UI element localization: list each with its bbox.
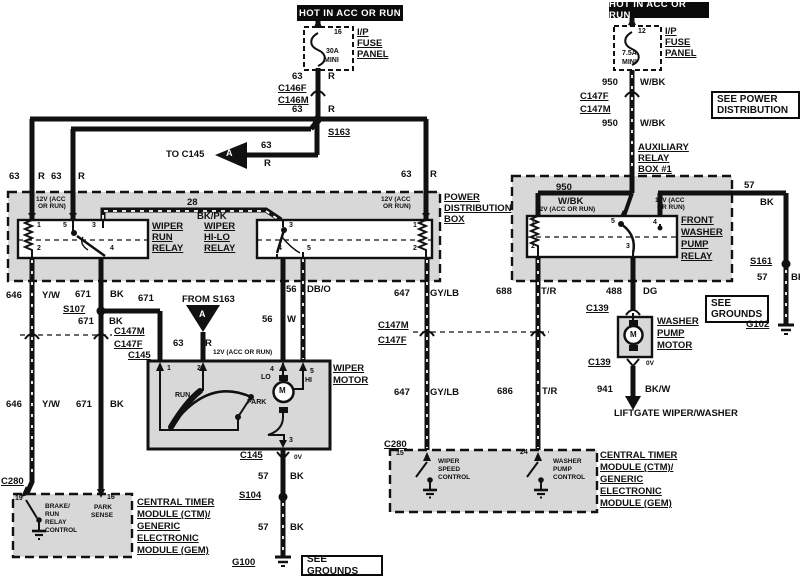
label-wm-pin4: 4 [270, 366, 274, 373]
label-wire-63-7c: R [205, 339, 212, 349]
label-conn-c147m-left: C147M [114, 327, 145, 337]
label-wire-63-4: 63 [401, 170, 412, 180]
label-liftgate-note: LIFTGATE WIPER/WASHER [614, 409, 738, 419]
label-wire-63-5c: R [38, 172, 45, 182]
label-front-washer-relay-1: FRONT [681, 216, 714, 226]
conn-c139-bottom-mark [627, 359, 639, 366]
label-wm-lo: LO [261, 374, 271, 381]
label-wiper-run-relay-1: WIPER [152, 222, 183, 232]
label-fuse-right-rating: 7.5A [622, 50, 637, 57]
label-lm-pin19: 19 [15, 495, 23, 502]
label-wiper-run-relay-2: RUN [152, 233, 173, 243]
label-conn-c280-left: C280 [1, 477, 24, 487]
label-splice-s107: S107 [63, 305, 85, 315]
label-pdb-label-1: POWER [444, 193, 480, 203]
label-wire-671-2: 671 [138, 294, 154, 304]
label-front-washer-relay-3: PUMP [681, 240, 708, 250]
label-wire-63-6: 63 [51, 172, 62, 182]
label-rm-wsc-3: CONTROL [438, 475, 470, 482]
label-pdb-12v-1b: OR RUN) [38, 204, 66, 211]
splice-s161-dot [782, 260, 791, 269]
label-aux-relay-pin2: 2 [531, 243, 535, 250]
label-conn-c139-top: C139 [586, 304, 609, 314]
label-rm-wpc-2: PUMP [553, 467, 572, 474]
label-fuse-left-rating: 30A [326, 48, 339, 55]
label-wiper-hilo-relay-2: HI-LO [204, 233, 230, 243]
label-wire-647-2: 647 [394, 388, 410, 398]
label-wire-950-2c: W/BK [640, 119, 665, 129]
label-wire-688c: T/R [541, 287, 556, 297]
wiper-motor [148, 361, 330, 449]
label-wire-56-1: 56 [286, 285, 297, 295]
see-power-line1: SEE POWER [717, 94, 794, 106]
label-wiper-hilo-relay-1: WIPER [204, 222, 235, 232]
label-wire-63-7: 63 [173, 339, 184, 349]
label-aux-relay-pin5: 5 [611, 218, 615, 225]
label-wire-688: 688 [496, 287, 512, 297]
label-ip-fuse-panel-left-2: FUSE [357, 39, 382, 49]
label-aux-relay-pin3: 3 [626, 243, 630, 250]
label-wire-28: 28 [187, 198, 198, 208]
label-ground-g100: G100 [232, 558, 255, 568]
label-conn-c146f: C146F [278, 84, 307, 94]
label-wm-pin3: 3 [289, 437, 293, 444]
label-ip-fuse-panel-right-3: PANEL [665, 49, 697, 59]
label-ctm-left-4: ELECTRONIC [137, 534, 199, 544]
label-wire-646-1: 646 [6, 291, 22, 301]
label-wiper-run-relay-3: RELAY [152, 244, 183, 254]
label-splice-s163: S163 [328, 128, 350, 138]
label-c139-0v: 0V [646, 361, 654, 368]
label-lm-brake-4: CONTROL [45, 528, 77, 535]
label-washer-pump-motor-3: MOTOR [657, 341, 692, 351]
label-hilo-pin3: 3 [289, 222, 293, 229]
label-lm-park-2: SENSE [91, 513, 113, 520]
label-ctm-left-1: CENTRAL TIMER [137, 498, 214, 508]
label-ctm-right-4: ELECTRONIC [600, 487, 662, 497]
label-ctm-left-2: MODULE (CTM)/ [137, 510, 210, 520]
label-ip-fuse-panel-right-1: I/P [665, 27, 677, 37]
label-front-washer-relay-4: RELAY [681, 252, 712, 262]
label-run-relay-pin5: 5 [63, 222, 67, 229]
label-aux-box-label-2: RELAY [638, 154, 669, 164]
label-run-relay-pin3: 3 [92, 222, 96, 229]
label-ctm-left-5: MODULE (GEM) [137, 546, 209, 556]
label-ctm-right-3: GENERIC [600, 475, 643, 485]
label-fuse-right-mini: MINI [622, 59, 637, 66]
label-wire-686c: T/R [542, 387, 557, 397]
label-wire-671-1: 671 [75, 290, 91, 300]
label-wire-950-3: 950 [556, 183, 572, 193]
see-grounds-mid-text: SEE GROUNDS [307, 554, 377, 577]
label-wire-646-2: 646 [6, 400, 22, 410]
label-fuse-left-position: 16 [334, 29, 342, 36]
label-hilo-pin1: 1 [413, 222, 417, 229]
label-wire-56-2c: W [287, 315, 296, 325]
label-rm-pin15: 15 [396, 450, 404, 457]
splice-s107-dot [97, 307, 106, 316]
label-wire-63-6c: R [78, 172, 85, 182]
see-power-distribution-box: SEE POWER DISTRIBUTION [711, 91, 800, 119]
label-lm-brake-3: RELAY [45, 520, 66, 527]
label-wire-57-4: 57 [757, 273, 768, 283]
label-wire-950-1: 950 [602, 78, 618, 88]
label-wm-pin5: 5 [310, 368, 314, 375]
label-wire-647-1: 647 [394, 289, 410, 299]
label-wire-646-2c: Y/W [42, 400, 60, 410]
label-conn-c280-right: C280 [384, 440, 407, 450]
label-washer-pump-motor-2: PUMP [657, 329, 684, 339]
wiring-diagram: HOT IN ACC OR RUN HOT IN ACC OR RUN SEE … [0, 0, 800, 582]
label-wiper-motor-label-2: MOTOR [333, 376, 368, 386]
label-washer-pump-motor-1: WASHER [657, 317, 699, 327]
label-wire-57-1c: BK [290, 472, 304, 482]
label-pdb-label-3: BOX [444, 215, 465, 225]
label-wire-950-2: 950 [602, 119, 618, 129]
label-from-s163: FROM S163 [182, 295, 235, 305]
label-rm-wpc-3: CONTROL [553, 475, 585, 482]
label-fuse-right-position: 12 [638, 28, 646, 35]
label-wiper-hilo-relay-3: RELAY [204, 244, 235, 254]
label-wiper-motor-label-1: WIPER [333, 364, 364, 374]
label-wire-950-1c: W/BK [640, 78, 665, 88]
label-aux-12v-1: 12V (ACC OR RUN) [536, 207, 595, 214]
label-pdb-12v-2b: OR RUN) [383, 204, 411, 211]
label-ctm-left-3: GENERIC [137, 522, 180, 532]
label-ip-fuse-panel-right-2: FUSE [665, 38, 690, 48]
label-wire-488c: DG [643, 287, 657, 297]
label-wire-63-1: 63 [292, 72, 303, 82]
label-wire-63-5: 63 [9, 172, 20, 182]
label-aux-box-label-3: BOX #1 [638, 165, 672, 175]
label-wire-671-1c: BK [110, 290, 124, 300]
label-front-washer-relay-2: WASHER [681, 228, 723, 238]
label-run-relay-pin4: 4 [110, 245, 114, 252]
see-grounds-box-mid: SEE GROUNDS [301, 555, 383, 576]
label-wire-63-2c: R [328, 105, 335, 115]
label-wire-671-4: 671 [76, 400, 92, 410]
label-wm-hi: HI [305, 377, 312, 384]
label-wiper-motor-m: M [279, 387, 286, 395]
label-conn-c147f-mid: C147F [378, 336, 407, 346]
label-wire-647-1c: GY/LB [430, 289, 459, 299]
label-wm-run: RUN [175, 392, 190, 399]
label-rm-wpc-1: WASHER [553, 459, 582, 466]
label-wire-56-1c: DB/O [307, 285, 331, 295]
label-wire-671-3: 671 [78, 317, 94, 327]
label-aux-relay-pin1: 1 [531, 219, 535, 226]
see-grounds-right-line1: SEE [711, 298, 763, 310]
label-wire-57-1: 57 [258, 472, 269, 482]
label-wire-57-2: 57 [258, 523, 269, 533]
label-aux-relay-pin4: 4 [653, 219, 657, 226]
see-power-line2: DISTRIBUTION [717, 105, 794, 117]
label-ip-fuse-panel-left-3: PANEL [357, 50, 389, 60]
label-ip-fuse-panel-left-1: I/P [357, 28, 369, 38]
ctm-left-box-outline [13, 494, 132, 557]
label-wire-941: 941 [597, 385, 613, 395]
label-triangle-a-left: A [226, 149, 233, 158]
label-wm-pin1: 1 [167, 365, 171, 372]
label-aux-12v-2b: OR RUN) [657, 205, 685, 212]
label-triangle-a-down: A [199, 310, 206, 319]
label-hilo-pin2: 2 [413, 245, 417, 252]
label-wire-57-3c: BK [760, 198, 774, 208]
label-conn-c147m-mid: C147M [378, 321, 409, 331]
ground-g102-symbol [778, 325, 794, 334]
wiper-hilo-relay [257, 220, 432, 258]
label-wire-941c: BK/W [645, 385, 670, 395]
label-aux-box-label-1: AUXILIARY [638, 143, 689, 153]
label-conn-c147f-left: C147F [114, 340, 143, 350]
label-run-relay-pin2: 2 [37, 245, 41, 252]
label-conn-c145-branch: C145 [128, 351, 151, 361]
label-wire-63-3c: R [264, 159, 271, 169]
label-conn-c147m-right: C147M [580, 105, 611, 115]
label-ctm-right-5: MODULE (GEM) [600, 499, 672, 509]
label-conn-c145-bottom: C145 [240, 451, 263, 461]
splice-s104-dot [279, 493, 288, 502]
label-wire-646-1c: Y/W [42, 291, 60, 301]
ground-g100-symbol [275, 557, 291, 566]
label-pdb-label-2: DISTRIBUTION [444, 204, 512, 214]
hot-in-acc-or-run-right: HOT IN ACC OR RUN [609, 2, 709, 18]
label-conn-c139-bottom: C139 [588, 358, 611, 368]
label-wire-63-1c: R [328, 72, 335, 82]
label-fuse-left-mini: MINI [324, 57, 339, 64]
label-wire-57-3: 57 [744, 181, 755, 191]
label-splice-s104: S104 [239, 491, 261, 501]
label-wire-63-4c: R [430, 170, 437, 180]
label-wm-pin2: 2 [197, 365, 201, 372]
label-wire-57-4c: BK [791, 273, 800, 283]
label-wire-63-3: 63 [261, 141, 272, 151]
label-rm-pin24: 24 [520, 449, 528, 456]
label-ground-g102: G102 [746, 320, 769, 330]
label-washer-motor-m: M [630, 331, 637, 339]
label-wire-488: 488 [606, 287, 622, 297]
label-hilo-pin5: 5 [307, 245, 311, 252]
label-lm-brake-2: RUN [45, 512, 59, 519]
label-rm-wsc-1: WIPER [438, 459, 459, 466]
label-hilo-pin4: 4 [278, 245, 282, 252]
motor-brush-top [279, 375, 288, 381]
label-wire-686: 686 [497, 387, 513, 397]
label-splice-s161: S161 [750, 257, 772, 267]
label-lm-park-1: PARK [94, 505, 112, 512]
label-wire-57-2c: BK [290, 523, 304, 533]
label-wire-647-2c: GY/LB [430, 388, 459, 398]
label-lm-pin16: 16 [107, 494, 115, 501]
splice-s163-dot [313, 116, 322, 125]
label-wire-671-4c: BK [110, 400, 124, 410]
label-wm-12v: 12V (ACC OR RUN) [213, 350, 272, 357]
label-wire-63-2: 63 [292, 105, 303, 115]
label-wire-56-2: 56 [262, 315, 273, 325]
label-c145-0v: 0V [294, 455, 302, 462]
label-ctm-right-1: CENTRAL TIMER [600, 451, 677, 461]
motor-brush-bottom [279, 407, 288, 413]
label-conn-c147f-right: C147F [580, 92, 609, 102]
label-wm-park: PARK [247, 399, 266, 406]
label-rm-wsc-2: SPEED [438, 467, 460, 474]
hot-in-acc-or-run-left: HOT IN ACC OR RUN [297, 5, 403, 21]
label-ctm-right-2: MODULE (CTM)/ [600, 463, 673, 473]
label-run-relay-pin1: 1 [37, 222, 41, 229]
label-lm-brake-1: BRAKE/ [45, 504, 70, 511]
label-to-c145: TO C145 [166, 150, 204, 160]
